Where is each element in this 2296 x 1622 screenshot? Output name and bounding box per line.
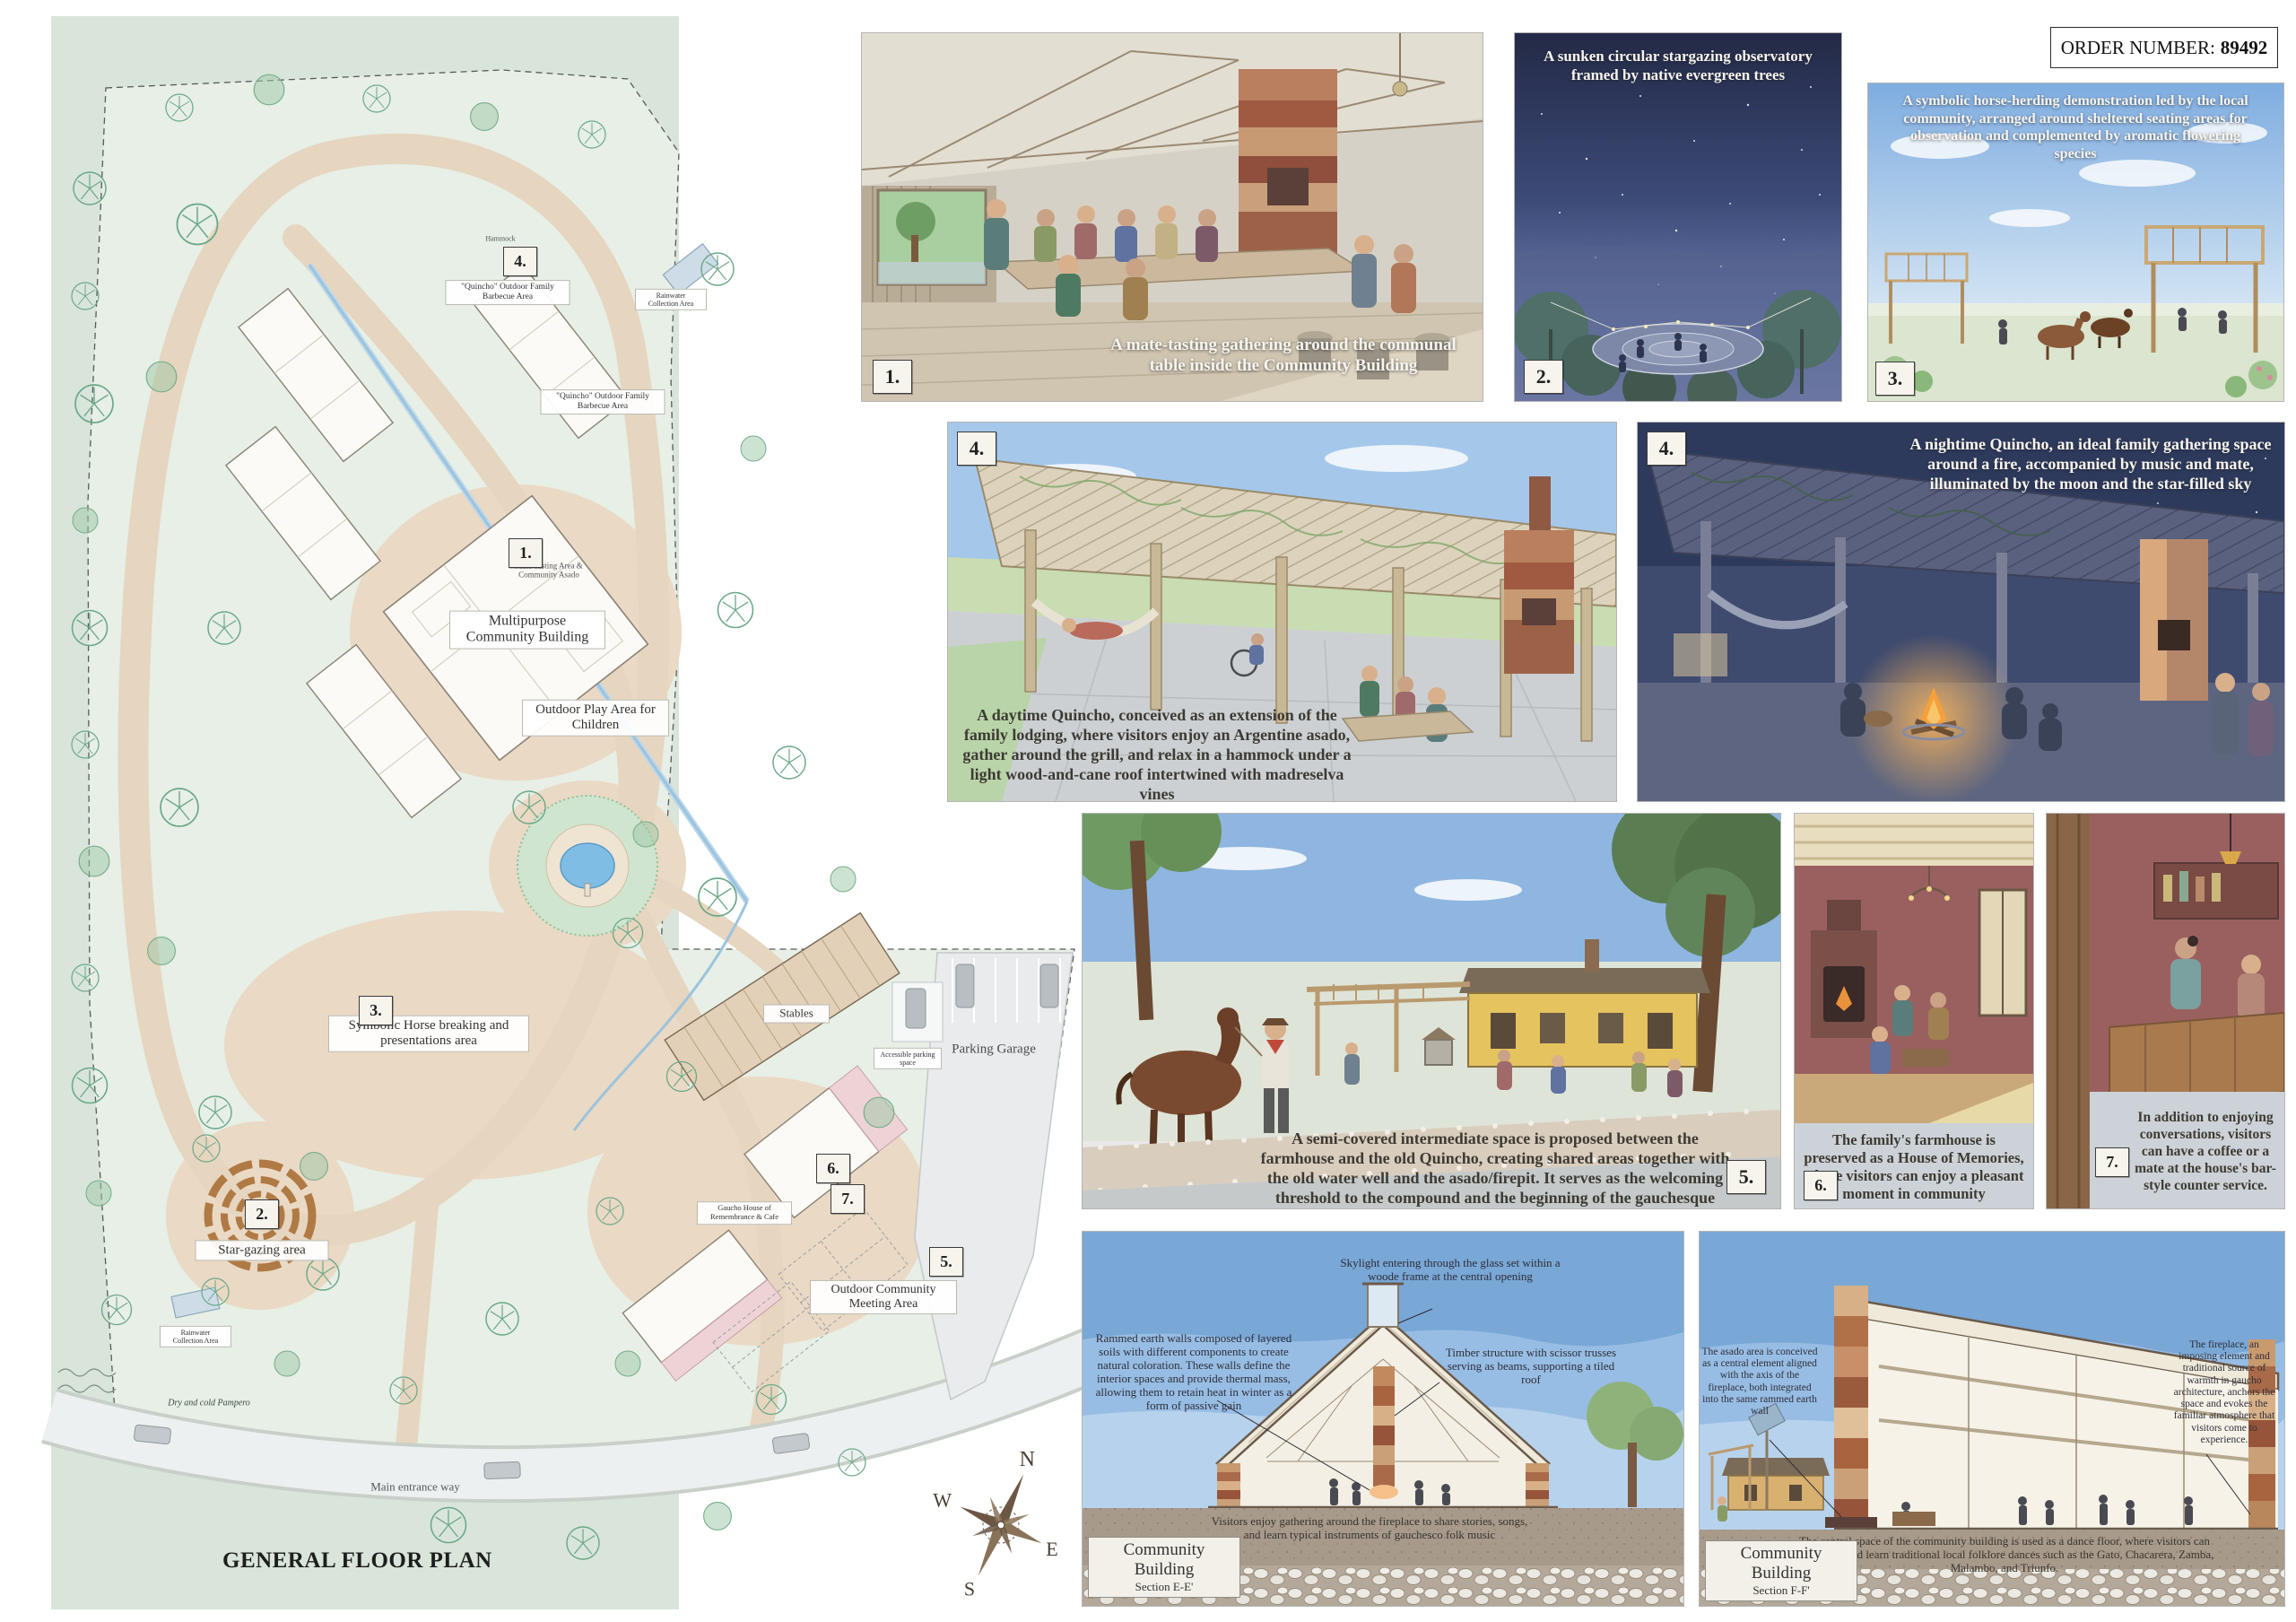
plan-badge-4: 4. — [503, 247, 537, 276]
panel-4-day-badge: 4. — [957, 432, 996, 466]
plan-badge-7: 7. — [831, 1184, 865, 1214]
plan-badge-3: 3. — [359, 996, 393, 1025]
panel-4-day-caption: A daytime Quincho, conceived as an exten… — [961, 706, 1353, 802]
section-ee-caption: Visitors enjoy gathering around the fire… — [1208, 1515, 1531, 1542]
earth-wall-left — [1217, 1463, 1240, 1506]
panel-1: A mate-tasting gathering around the comm… — [861, 32, 1483, 402]
compass-n-label: N — [1020, 1448, 1035, 1471]
compass-rose-icon: N E S W — [897, 1417, 1096, 1622]
label-multipurpose-building: Multipurpose Community Building — [449, 611, 605, 650]
brick-chimney — [1239, 69, 1337, 257]
section-ee-subtitle: Section E-E' — [1094, 1580, 1234, 1594]
label-rainwater-b: Rainwater Collection Area — [160, 1326, 231, 1347]
panel-7: In addition to enjoying conversations, v… — [2046, 813, 2285, 1209]
label-main-entrance: Main entrance way — [344, 1481, 487, 1495]
section-ee: Skylight entering through the glass set … — [1082, 1231, 1684, 1607]
label-stargazing: Star-gazing area — [196, 1240, 329, 1260]
plan-title: GENERAL FLOOR PLAN — [222, 1548, 492, 1574]
panel-2: A sunken circular stargazing observatory… — [1514, 32, 1842, 402]
label-accessible-parking: Accessible parking space — [874, 1048, 942, 1069]
label-memories-house: Gaucho House of Remembrance & Cafe — [697, 1201, 792, 1225]
panel-3-caption: A symbolic horse-herding demonstration l… — [1893, 92, 2257, 162]
panel-2-badge: 2. — [1524, 360, 1563, 394]
compass-w-label: W — [933, 1489, 952, 1512]
section-ff-subtitle: Section F-F' — [1711, 1583, 1851, 1598]
label-rainwater-a: Rainwater Collection Area — [635, 289, 707, 310]
panel-5-caption: A semi-covered intermediate space is pro… — [1253, 1129, 1737, 1209]
compass-e-label: E — [1046, 1538, 1057, 1560]
plan-badge-6: 6. — [816, 1154, 850, 1183]
section-ee-title: Community Building — [1094, 1540, 1234, 1580]
section-ff: The asado area is conceived as a central… — [1699, 1231, 2285, 1607]
panel-5-badge: 5. — [1726, 1160, 1766, 1194]
plan-badge-1: 1. — [509, 538, 543, 568]
bar-shelf — [2154, 863, 2278, 919]
wood-post — [2047, 814, 2090, 1208]
panel-7-badge: 7. — [2095, 1147, 2129, 1177]
customer — [2238, 955, 2265, 1020]
panel-4-day: A daytime Quincho, conceived as an exten… — [947, 422, 1617, 802]
panel-2-illustration — [1515, 33, 1841, 401]
presentation-board: N E S W Multipurpose Community Building … — [0, 0, 2296, 1622]
plan-badge-2: 2. — [245, 1199, 279, 1229]
section-ff-titleblock: Community Building Section F-F' — [1705, 1540, 1857, 1601]
panel-3: A symbolic horse-herding demonstration l… — [1867, 83, 2284, 402]
panel-1-caption: A mate-tasting gathering around the comm… — [1102, 335, 1465, 376]
label-stables: Stables — [763, 1005, 830, 1024]
panel-7-caption: In addition to enjoying conversations, v… — [2133, 1110, 2278, 1195]
panel-4-night: A nightime Quincho, an ideal family gath… — [1637, 422, 2285, 802]
panel-6-badge: 6. — [1804, 1171, 1838, 1200]
order-number-value: 89492 — [2221, 37, 2268, 59]
section-ee-ann-skylight: Skylight entering through the glass set … — [1334, 1257, 1567, 1284]
label-quincho-a: "Quincho" Outdoor Family Barbecue Area — [446, 280, 570, 305]
label-hammock: Hammock — [469, 234, 532, 242]
label-meeting-area: Outdoor Community Meeting Area — [810, 1280, 957, 1314]
section-ff-title: Community Building — [1711, 1544, 1851, 1583]
section-ee-ann-walls: Rammed earth walls composed of layered s… — [1090, 1332, 1298, 1413]
section-ee-titleblock: Community Building Section E-E' — [1088, 1537, 1240, 1598]
panel-6: The family's farmhouse is preserved as a… — [1794, 813, 2034, 1209]
panel-4-night-badge: 4. — [1647, 432, 1686, 466]
pond — [517, 796, 657, 936]
panel-3-badge: 3. — [1875, 362, 1915, 396]
section-ff-ann-fireplace: The fireplace, an imposing element and t… — [2173, 1339, 2275, 1446]
compass-s-label: S — [964, 1578, 975, 1600]
panel-5: A semi-covered intermediate space is pro… — [1082, 813, 1781, 1209]
section-ff-ann-asado: The asado area is conceived as a central… — [1701, 1347, 1818, 1417]
order-number-box: ORDER NUMBER: 89492 — [2050, 27, 2278, 68]
fireplace-column — [1370, 1366, 1398, 1499]
label-play-area: Outdoor Play Area for Children — [522, 700, 669, 737]
label-parking: Parking Garage — [935, 1042, 1052, 1057]
panel-4-night-caption: A nightime Quincho, an ideal family gath… — [1907, 435, 2274, 494]
plan-badge-5: 5. — [929, 1247, 963, 1277]
chimney-night — [2140, 539, 2208, 701]
window-glow — [1674, 633, 1727, 676]
panel-1-badge: 1. — [873, 360, 912, 394]
label-quincho-b: "Quincho" Outdoor Family Barbecue Area — [541, 389, 665, 414]
earth-wall-right — [1526, 1463, 1549, 1506]
label-pampero: Dry and cold Pampero — [155, 1398, 263, 1408]
panel-2-caption: A sunken circular stargazing observatory… — [1535, 48, 1822, 84]
order-number-label: ORDER NUMBER: — [2061, 37, 2215, 59]
section-ee-ann-timber: Timber structure with scissor trusses se… — [1441, 1347, 1621, 1387]
